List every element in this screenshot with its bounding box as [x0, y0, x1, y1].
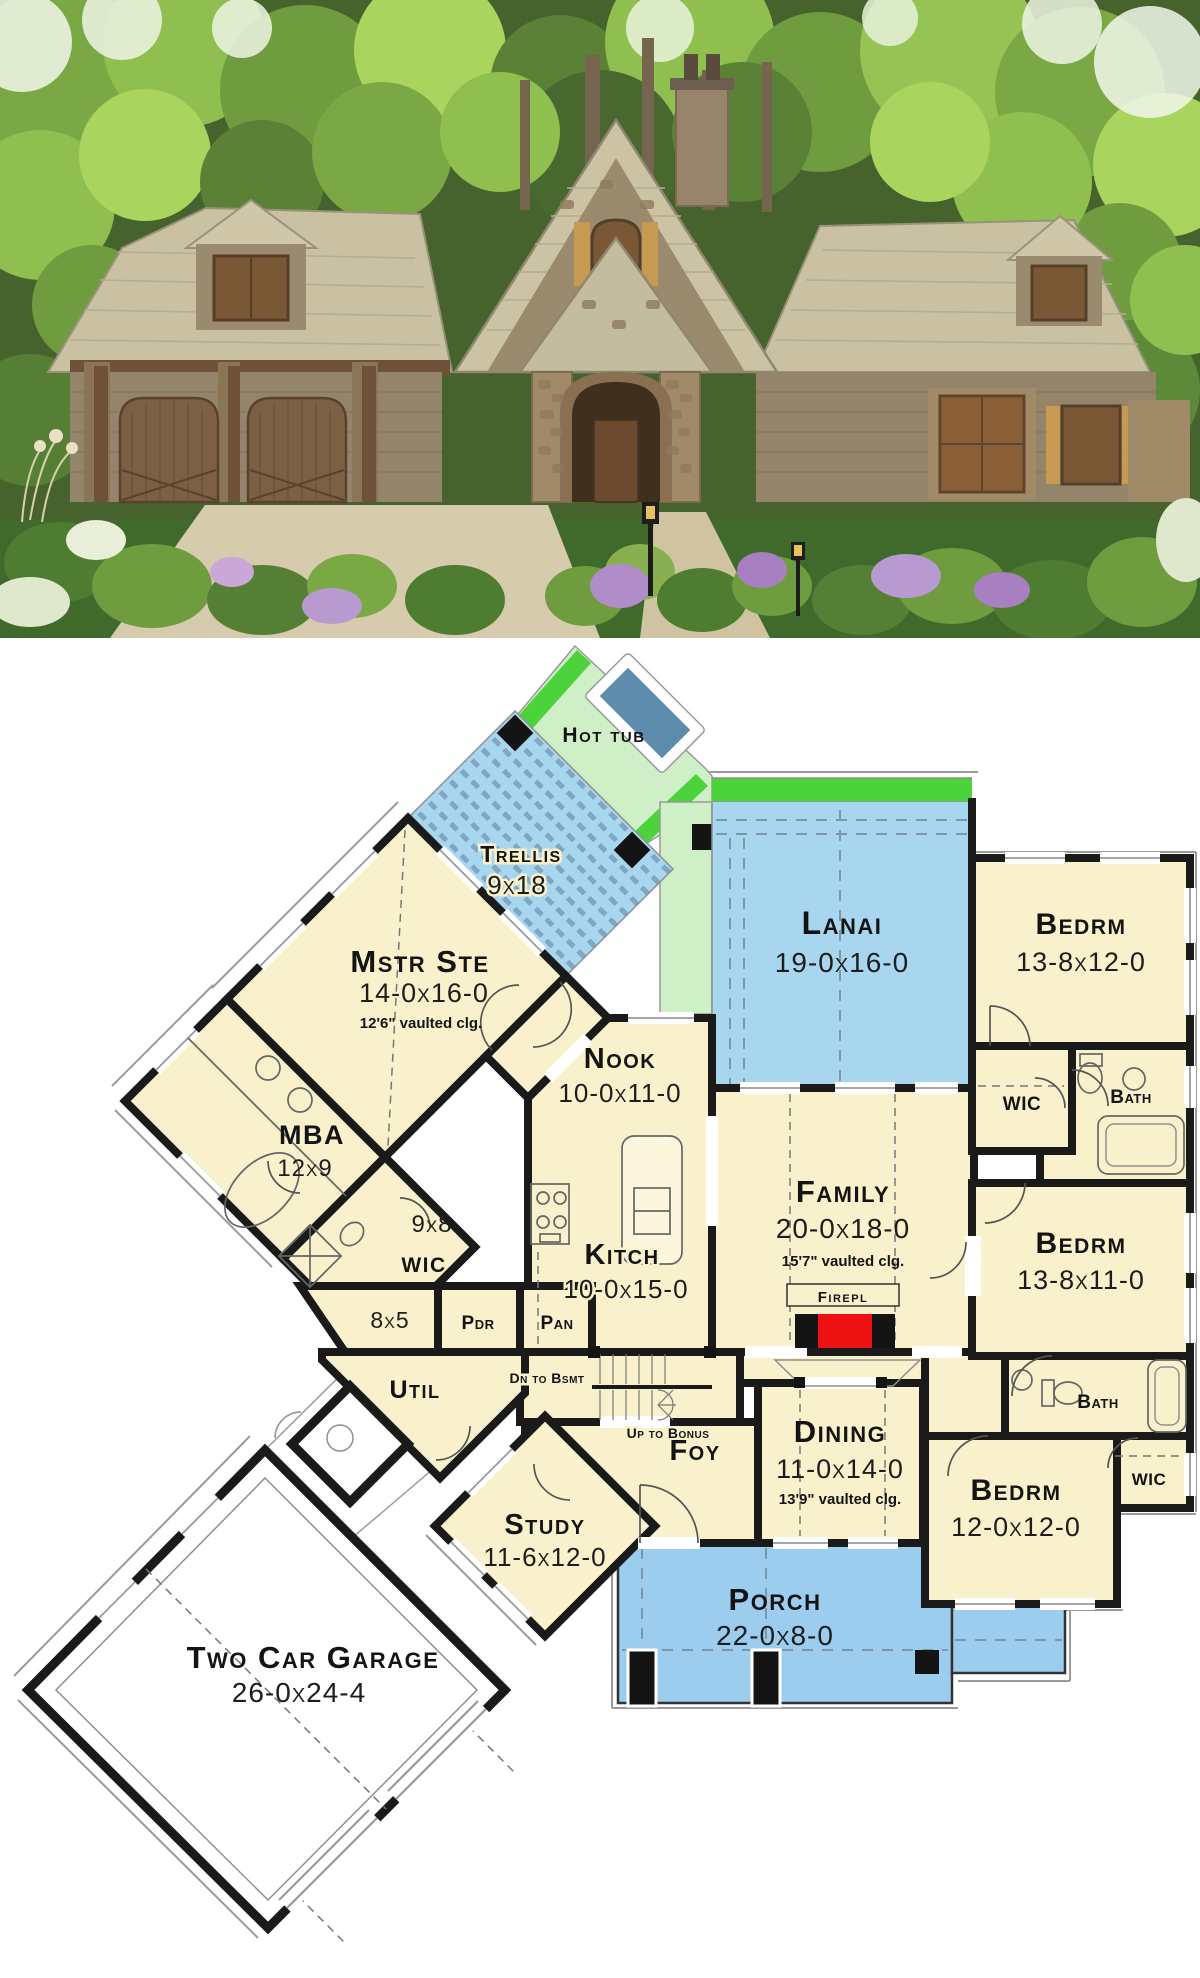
house-plan-pin: Hot tub Trellis 9x18 Lanai 19-0x16-0 Bed…	[0, 0, 1200, 1978]
label-foy: Foy	[669, 1435, 720, 1467]
label-mba-dims: 12x9	[277, 1155, 332, 1182]
label-bath-top: Bath	[1110, 1087, 1151, 1108]
label-trellis: Trellis	[480, 841, 561, 867]
label-family-note: 15'7" vaulted clg.	[782, 1253, 904, 1270]
label-porch: Porch	[729, 1582, 822, 1617]
porch-column	[752, 1650, 780, 1706]
label-dn-to-bsmt: Dn to Bsmt	[509, 1370, 584, 1386]
label-bedrm-mid-dims: 13-8x11-0	[1017, 1265, 1145, 1295]
label-wic-mstr-dims: 9x8	[411, 1211, 452, 1238]
hall-bedrooms	[925, 1352, 1005, 1436]
label-wic-top: WIC	[1003, 1094, 1041, 1115]
label-dining-dims: 11-0x14-0	[776, 1454, 904, 1484]
label-mba: MBA	[279, 1120, 345, 1150]
firebox	[818, 1314, 872, 1348]
label-dining-note: 13'9" vaulted clg.	[779, 1491, 901, 1508]
label-bedrm-bottom-dims: 12-0x12-0	[951, 1512, 1081, 1542]
label-lanai: Lanai	[802, 905, 883, 941]
label-firepl: Firepl	[818, 1289, 869, 1306]
lanai-green-band	[712, 778, 972, 802]
lanai	[712, 802, 972, 1088]
label-pdr: Pdr	[462, 1313, 495, 1334]
label-bedrm-mid: Bedrm	[1036, 1227, 1127, 1260]
label-garage: Two Car Garage	[187, 1640, 440, 1675]
label-wic-mstr: WIC	[401, 1254, 446, 1277]
label-bedrm-top: Bedrm	[1036, 908, 1127, 941]
label-bedrm-top-dims: 13-8x12-0	[1016, 947, 1146, 977]
label-dining: Dining	[794, 1414, 887, 1449]
label-mstr-note: 12'6" vaulted clg.	[360, 1015, 482, 1032]
porch-column	[628, 1650, 656, 1706]
label-pan: Pan	[541, 1313, 574, 1334]
label-bath-mid: Bath	[1077, 1392, 1118, 1413]
label-bedrm-bottom: Bedrm	[971, 1474, 1062, 1507]
label-lanai-dims: 19-0x16-0	[775, 947, 909, 978]
house-rendering	[0, 0, 1200, 638]
label-nook: Nook	[584, 1043, 657, 1075]
label-porch-dims: 22-0x8-0	[716, 1620, 834, 1651]
label-kitch: Kitch	[584, 1239, 659, 1271]
label-study: Study	[504, 1509, 585, 1541]
floor-plan: Hot tub Trellis 9x18 Lanai 19-0x16-0 Bed…	[0, 638, 1200, 1978]
label-family-dims: 20-0x18-0	[776, 1213, 910, 1244]
label-study-dims: 11-6x12-0	[483, 1542, 606, 1572]
porch-post	[915, 1650, 939, 1674]
label-mstr-dims: 14-0x16-0	[359, 978, 489, 1008]
label-nook-dims: 10-0x11-0	[558, 1078, 681, 1108]
label-kitch-dims: 10-0x15-0	[563, 1274, 688, 1304]
label-mstr: Mstr Ste	[350, 944, 489, 979]
label-8x5: 8x5	[370, 1307, 409, 1333]
label-util: Util	[389, 1376, 440, 1404]
label-family: Family	[796, 1174, 890, 1209]
label-wic-mid: WIC	[1132, 1470, 1167, 1489]
label-hot-tub: Hot tub	[562, 724, 645, 747]
label-garage-dims: 26-0x24-4	[232, 1677, 366, 1708]
label-trellis-dims: 9x18	[487, 870, 546, 900]
